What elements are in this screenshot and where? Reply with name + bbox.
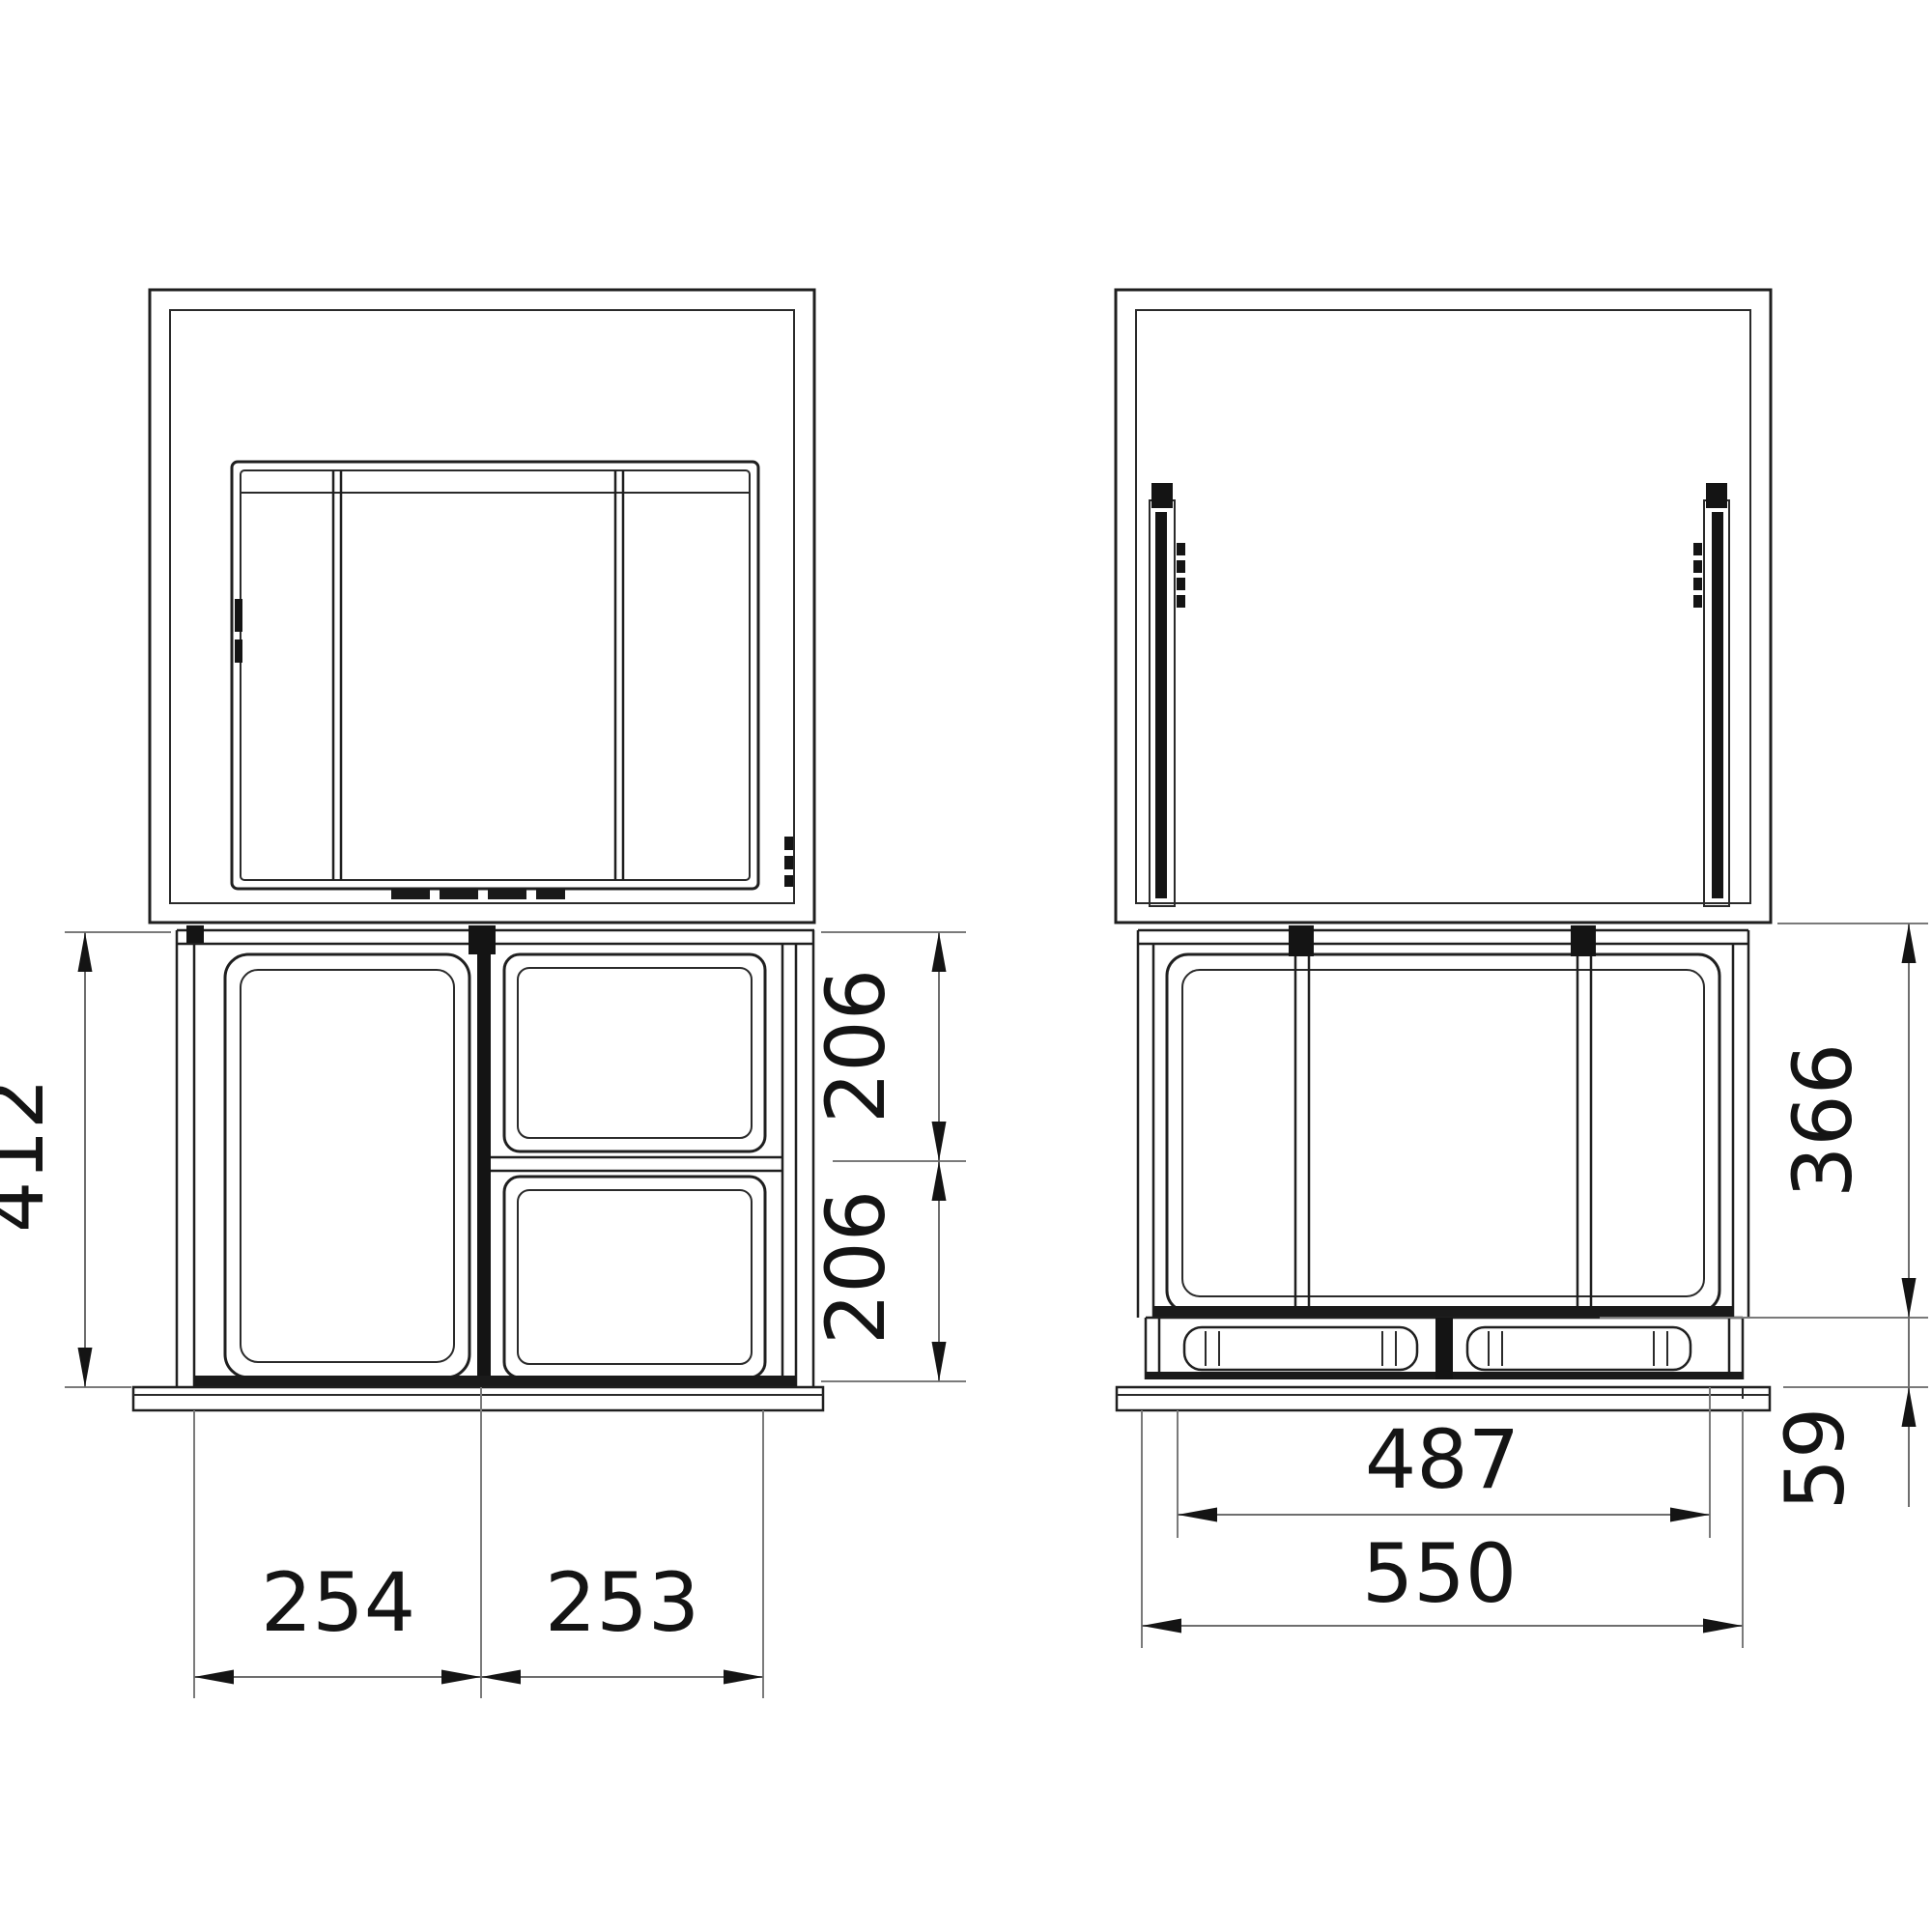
dim-206-lower-label: 206 — [809, 1190, 903, 1345]
side-base-frame — [1146, 1318, 1743, 1379]
side-view — [1116, 290, 1771, 1410]
side-bracket-1 — [1289, 925, 1314, 956]
bin-upper-outer — [504, 954, 765, 1151]
unit-left-bracket — [186, 925, 204, 943]
frame-divider-left — [333, 470, 341, 880]
side-bracket-2 — [1571, 925, 1596, 956]
frame-outer — [232, 462, 758, 889]
dim-254: 254 — [194, 1387, 481, 1698]
frame-divider-right — [615, 470, 623, 880]
frame-bottom-clips — [391, 889, 565, 899]
side-bin-inner — [1182, 970, 1704, 1296]
front-floor-plate — [133, 1387, 823, 1410]
technical-drawing: 412 206 206 254 253 — [0, 0, 1932, 1932]
unit-center-divider — [477, 944, 491, 1378]
side-cabinet-outer — [1116, 290, 1771, 923]
front-view — [133, 290, 823, 1410]
side-dimensions: 366 59 487 550 — [1142, 923, 1928, 1648]
side-bin-divider-2 — [1577, 944, 1591, 1306]
side-cabinet — [1116, 290, 1771, 923]
side-bin-outer — [1167, 954, 1719, 1312]
side-unit-right-wall — [1733, 930, 1748, 1318]
dim-412: 412 — [0, 932, 171, 1387]
side-bin-divider-1 — [1295, 944, 1309, 1306]
front-bin-large — [225, 954, 469, 1378]
dim-366-label: 366 — [1776, 1043, 1870, 1198]
front-cabinet — [150, 290, 814, 923]
dim-412-label: 412 — [0, 1078, 62, 1233]
side-floor-plate — [1117, 1387, 1770, 1410]
side-bin-body — [1138, 925, 1748, 1318]
front-bin-unit — [177, 925, 814, 1387]
side-floor-plate-outline — [1117, 1387, 1770, 1410]
unit-bottom-band — [194, 1376, 796, 1387]
front-pullout-frame — [232, 462, 793, 899]
floor-plate-outline — [133, 1387, 823, 1410]
dim-550-label: 550 — [1362, 1526, 1517, 1621]
cabinet-inner — [170, 310, 794, 903]
bin-lower-outer — [504, 1177, 765, 1378]
side-rail-right — [1693, 483, 1729, 906]
front-bin-upper-right — [504, 954, 765, 1151]
bin-large-outer — [225, 954, 469, 1378]
bin-lower-inner — [518, 1190, 752, 1364]
side-cabinet-inner — [1136, 310, 1750, 903]
side-unit-left-wall — [1138, 930, 1153, 1318]
frame-hinge-marks-right — [784, 837, 793, 887]
dim-253: 253 — [481, 1410, 763, 1698]
frame-hinge-marks-left — [235, 599, 242, 663]
front-bin-lower-right — [504, 1177, 765, 1378]
dim-487-label: 487 — [1365, 1412, 1520, 1507]
dim-59-label: 59 — [1768, 1407, 1862, 1511]
dim-254-label: 254 — [261, 1555, 415, 1650]
side-bin-bottom-band — [1153, 1306, 1733, 1318]
bin-upper-inner — [518, 968, 752, 1138]
dim-59: 59 — [1768, 1318, 1928, 1510]
dim-206-upper: 206 — [809, 932, 966, 1161]
front-bin-shelf — [491, 1157, 782, 1171]
frame-inner — [241, 470, 750, 880]
side-rail-left — [1150, 483, 1185, 906]
dim-206-upper-label: 206 — [809, 969, 903, 1123]
dim-206-lower: 206 — [809, 1161, 966, 1381]
base-slot-right — [1467, 1327, 1690, 1370]
base-center-divider — [1435, 1318, 1453, 1379]
cabinet-outer — [150, 290, 814, 923]
dim-253-label: 253 — [545, 1555, 699, 1650]
dim-366: 366 — [1600, 923, 1928, 1318]
bin-large-inner — [241, 970, 454, 1362]
page: 412 206 206 254 253 — [0, 0, 1932, 1932]
base-slot-left — [1184, 1327, 1417, 1370]
unit-left-wall — [177, 930, 194, 1387]
